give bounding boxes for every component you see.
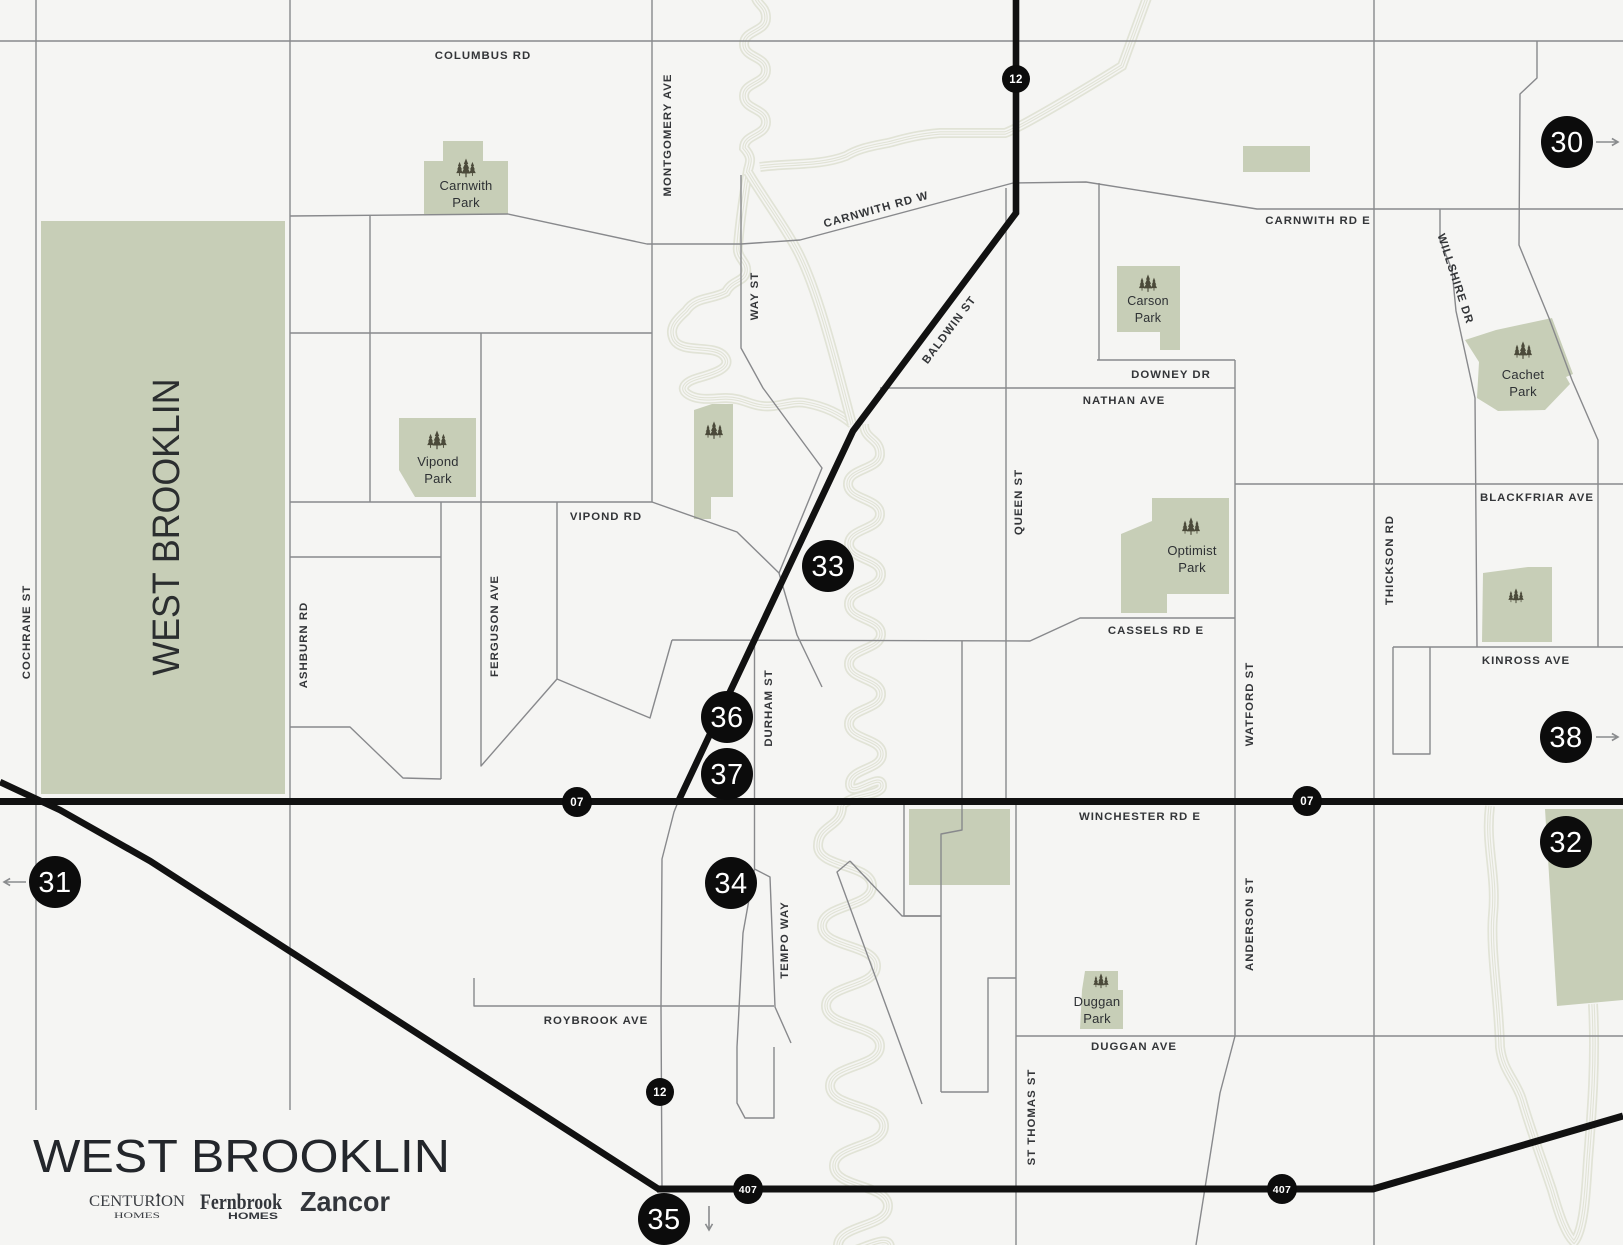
svg-text:Cachet: Cachet — [1502, 367, 1545, 382]
svg-text:HOMES: HOMES — [228, 1211, 278, 1221]
svg-text:FERGUSON AVE: FERGUSON AVE — [489, 575, 501, 677]
svg-text:Park: Park — [1083, 1011, 1111, 1026]
svg-text:ANDERSON ST: ANDERSON ST — [1244, 877, 1256, 971]
svg-text:ROYBROOK AVE: ROYBROOK AVE — [544, 1015, 648, 1027]
svg-text:VIPOND RD: VIPOND RD — [570, 511, 642, 523]
svg-text:33: 33 — [811, 551, 844, 583]
svg-text:407: 407 — [1273, 1184, 1291, 1196]
svg-text:DUGGAN AVE: DUGGAN AVE — [1091, 1041, 1177, 1053]
svg-text:Zancor: Zancor — [300, 1186, 390, 1217]
svg-text:35: 35 — [647, 1204, 680, 1236]
svg-text:Carson: Carson — [1127, 294, 1169, 308]
svg-text:QUEEN ST: QUEEN ST — [1013, 469, 1025, 535]
svg-text:NATHAN AVE: NATHAN AVE — [1083, 395, 1166, 407]
svg-text:THICKSON RD: THICKSON RD — [1384, 515, 1396, 605]
svg-text:HOMES: HOMES — [114, 1211, 160, 1220]
svg-text:CASSELS RD E: CASSELS RD E — [1108, 625, 1204, 637]
svg-text:36: 36 — [710, 702, 743, 734]
svg-text:12: 12 — [1009, 74, 1022, 86]
svg-text:30: 30 — [1550, 127, 1583, 159]
svg-text:WAY ST: WAY ST — [749, 272, 761, 320]
svg-text:WEST BROOKLIN: WEST BROOKLIN — [33, 1130, 450, 1182]
svg-text:DURHAM ST: DURHAM ST — [763, 669, 775, 746]
svg-text:Carnwith: Carnwith — [440, 178, 493, 193]
svg-text:Park: Park — [1178, 560, 1206, 575]
svg-text:CENTURION: CENTURION — [89, 1193, 185, 1210]
svg-text:Park: Park — [452, 195, 480, 210]
svg-text:38: 38 — [1549, 722, 1582, 754]
svg-text:ASHBURN RD: ASHBURN RD — [298, 602, 310, 689]
svg-text:07: 07 — [1300, 796, 1313, 808]
svg-text:31: 31 — [38, 867, 71, 899]
svg-text:WATFORD ST: WATFORD ST — [1244, 662, 1256, 746]
svg-text:KINROSS AVE: KINROSS AVE — [1482, 655, 1570, 667]
svg-text:Park: Park — [1135, 311, 1162, 325]
svg-text:Park: Park — [1509, 384, 1537, 399]
svg-text:32: 32 — [1549, 827, 1582, 859]
svg-text:34: 34 — [714, 868, 747, 900]
svg-text:37: 37 — [710, 759, 743, 791]
svg-text:12: 12 — [653, 1087, 666, 1099]
svg-text:Vipond: Vipond — [417, 454, 458, 469]
svg-text:DOWNEY DR: DOWNEY DR — [1131, 369, 1211, 381]
svg-text:MONTGOMERY AVE: MONTGOMERY AVE — [662, 74, 674, 197]
svg-text:TEMPO WAY: TEMPO WAY — [779, 901, 791, 979]
svg-text:WINCHESTER RD E: WINCHESTER RD E — [1079, 811, 1201, 823]
svg-text:Duggan: Duggan — [1074, 994, 1121, 1009]
svg-text:WEST BROOKLIN: WEST BROOKLIN — [146, 379, 188, 676]
svg-text:407: 407 — [739, 1184, 757, 1196]
svg-text:Optimist: Optimist — [1167, 543, 1216, 558]
svg-text:ST THOMAS ST: ST THOMAS ST — [1026, 1069, 1038, 1166]
svg-text:Park: Park — [424, 471, 452, 486]
svg-text:BLACKFRIAR AVE: BLACKFRIAR AVE — [1480, 492, 1594, 504]
svg-text:COLUMBUS RD: COLUMBUS RD — [435, 50, 531, 62]
svg-text:CARNWITH RD E: CARNWITH RD E — [1265, 215, 1370, 227]
svg-text:07: 07 — [570, 797, 583, 809]
svg-text:COCHRANE ST: COCHRANE ST — [21, 585, 33, 680]
